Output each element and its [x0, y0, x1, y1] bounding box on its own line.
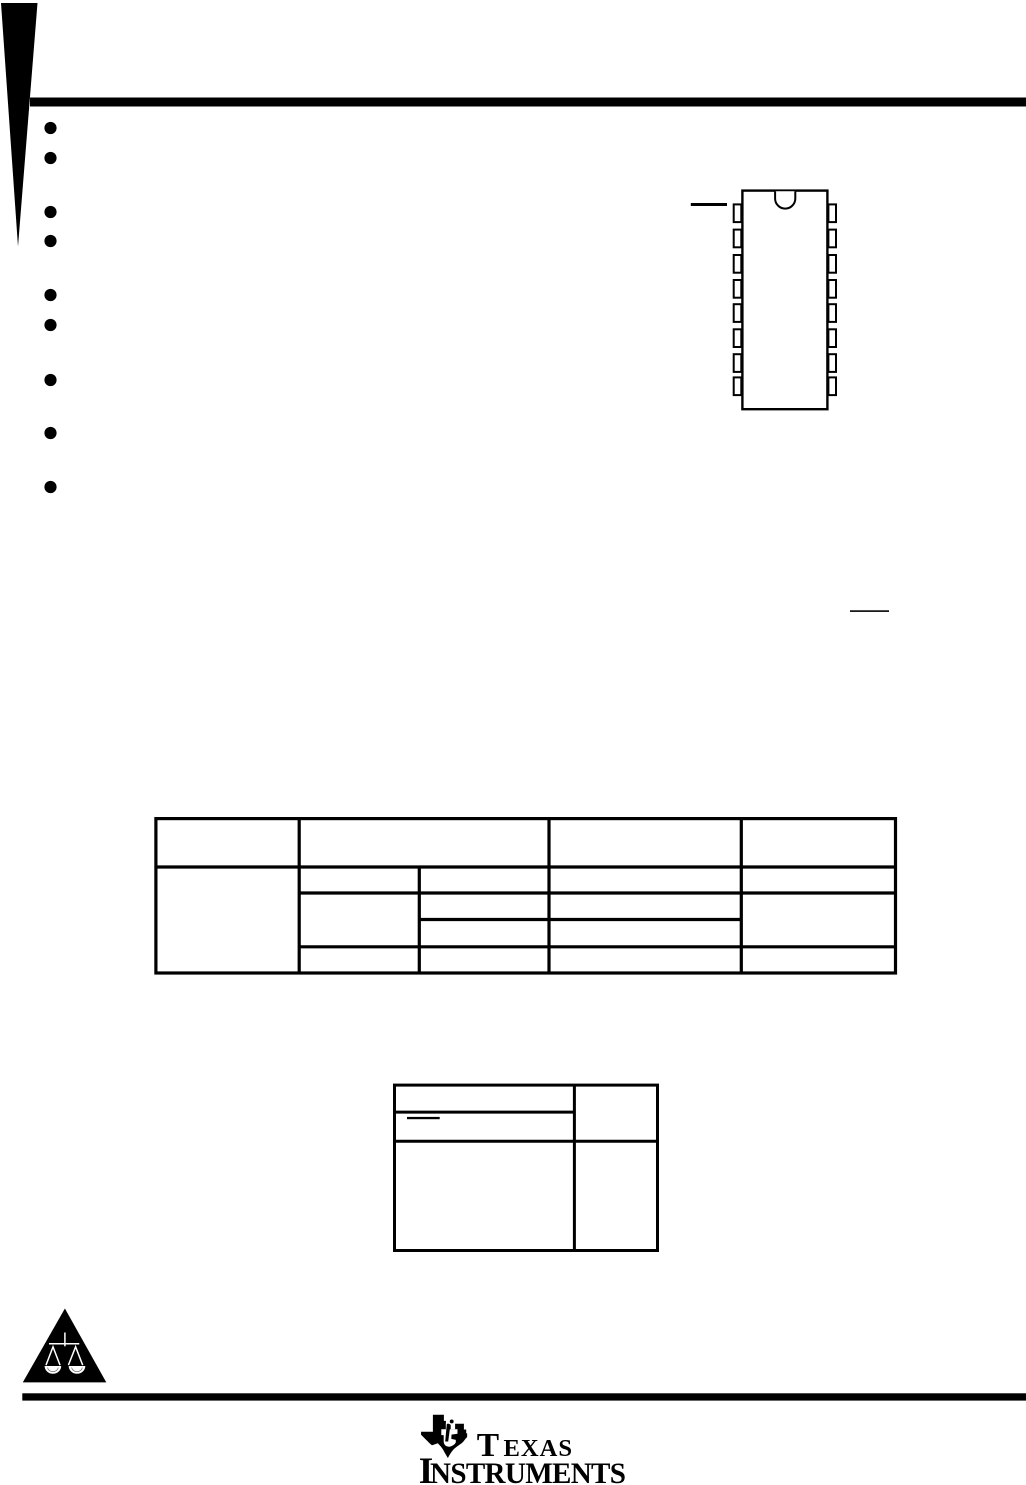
svg-text:NSTRUMENTS: NSTRUMENTS — [430, 1458, 625, 1485]
